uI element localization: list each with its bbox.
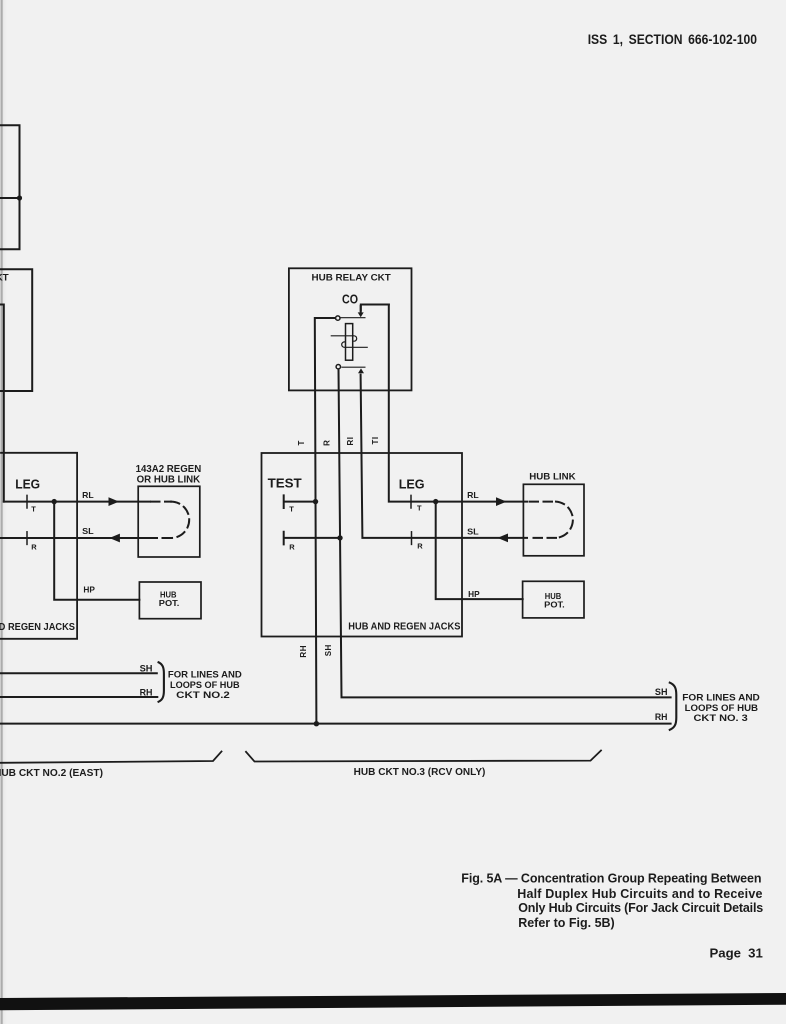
svg-text:HUB AND REGEN JACKS: HUB AND REGEN JACKS xyxy=(348,621,460,632)
svg-text:RH: RH xyxy=(655,712,668,723)
svg-text:HUB RELAY CKT: HUB RELAY CKT xyxy=(0,273,9,284)
svg-text:CKT NO.2: CKT NO.2 xyxy=(176,689,230,700)
svg-text:SL: SL xyxy=(82,526,94,536)
svg-text:Refer to Fig. 5B): Refer to Fig. 5B) xyxy=(518,916,615,930)
svg-text:SL: SL xyxy=(467,526,479,536)
svg-text:CKT NO. 3: CKT NO. 3 xyxy=(694,712,748,723)
svg-text:Page 31: Page 31 xyxy=(709,946,762,961)
svg-text:Half Duplex Hub Circuits and t: Half Duplex Hub Circuits and to Receive xyxy=(517,887,762,901)
svg-text:ISS 1, SECTION 666-102-100: ISS 1, SECTION 666-102-100 xyxy=(588,32,757,47)
svg-text:SH: SH xyxy=(324,644,333,656)
svg-text:RI: RI xyxy=(346,437,355,446)
svg-text:RL: RL xyxy=(82,490,94,500)
svg-text:TI: TI xyxy=(371,436,380,444)
svg-text:T: T xyxy=(297,440,306,445)
svg-text:R: R xyxy=(31,543,37,552)
svg-text:Fig. 5A — Concentration Group: Fig. 5A — Concentration Group Repeating … xyxy=(461,872,761,886)
svg-text:RH: RH xyxy=(140,688,153,699)
svg-text:HP: HP xyxy=(468,589,480,599)
svg-text:T: T xyxy=(31,504,36,513)
svg-text:SH: SH xyxy=(655,687,668,698)
svg-text:HUB RELAY CKT: HUB RELAY CKT xyxy=(312,273,391,284)
svg-text:LEG: LEG xyxy=(399,476,425,491)
svg-text:TEST: TEST xyxy=(268,476,302,491)
svg-text:RL: RL xyxy=(467,490,479,500)
svg-text:T: T xyxy=(417,504,422,513)
svg-text:POT.: POT. xyxy=(544,599,565,609)
svg-text:R: R xyxy=(323,440,332,446)
svg-text:HUB AND REGEN JACKS: HUB AND REGEN JACKS xyxy=(0,622,75,633)
svg-text:HUB CKT NO.3 (RCV ONLY): HUB CKT NO.3 (RCV ONLY) xyxy=(354,767,486,778)
svg-text:OR HUB LINK: OR HUB LINK xyxy=(137,474,201,485)
svg-text:LEG: LEG xyxy=(15,477,40,492)
svg-text:SH: SH xyxy=(140,663,153,674)
svg-text:CO: CO xyxy=(342,293,358,307)
svg-text:Only Hub Circuits (For Jack Ci: Only Hub Circuits (For Jack Circuit Deta… xyxy=(518,901,763,915)
svg-text:RH: RH xyxy=(299,645,308,658)
svg-text:HUB LINK: HUB LINK xyxy=(529,472,575,483)
svg-text:POT.: POT. xyxy=(159,598,180,608)
svg-text:HP: HP xyxy=(83,584,95,594)
svg-text:T: T xyxy=(289,504,294,513)
svg-text:R: R xyxy=(417,542,423,551)
svg-text:HUB CKT NO.2 (EAST): HUB CKT NO.2 (EAST) xyxy=(0,768,103,779)
svg-text:R: R xyxy=(289,543,295,552)
